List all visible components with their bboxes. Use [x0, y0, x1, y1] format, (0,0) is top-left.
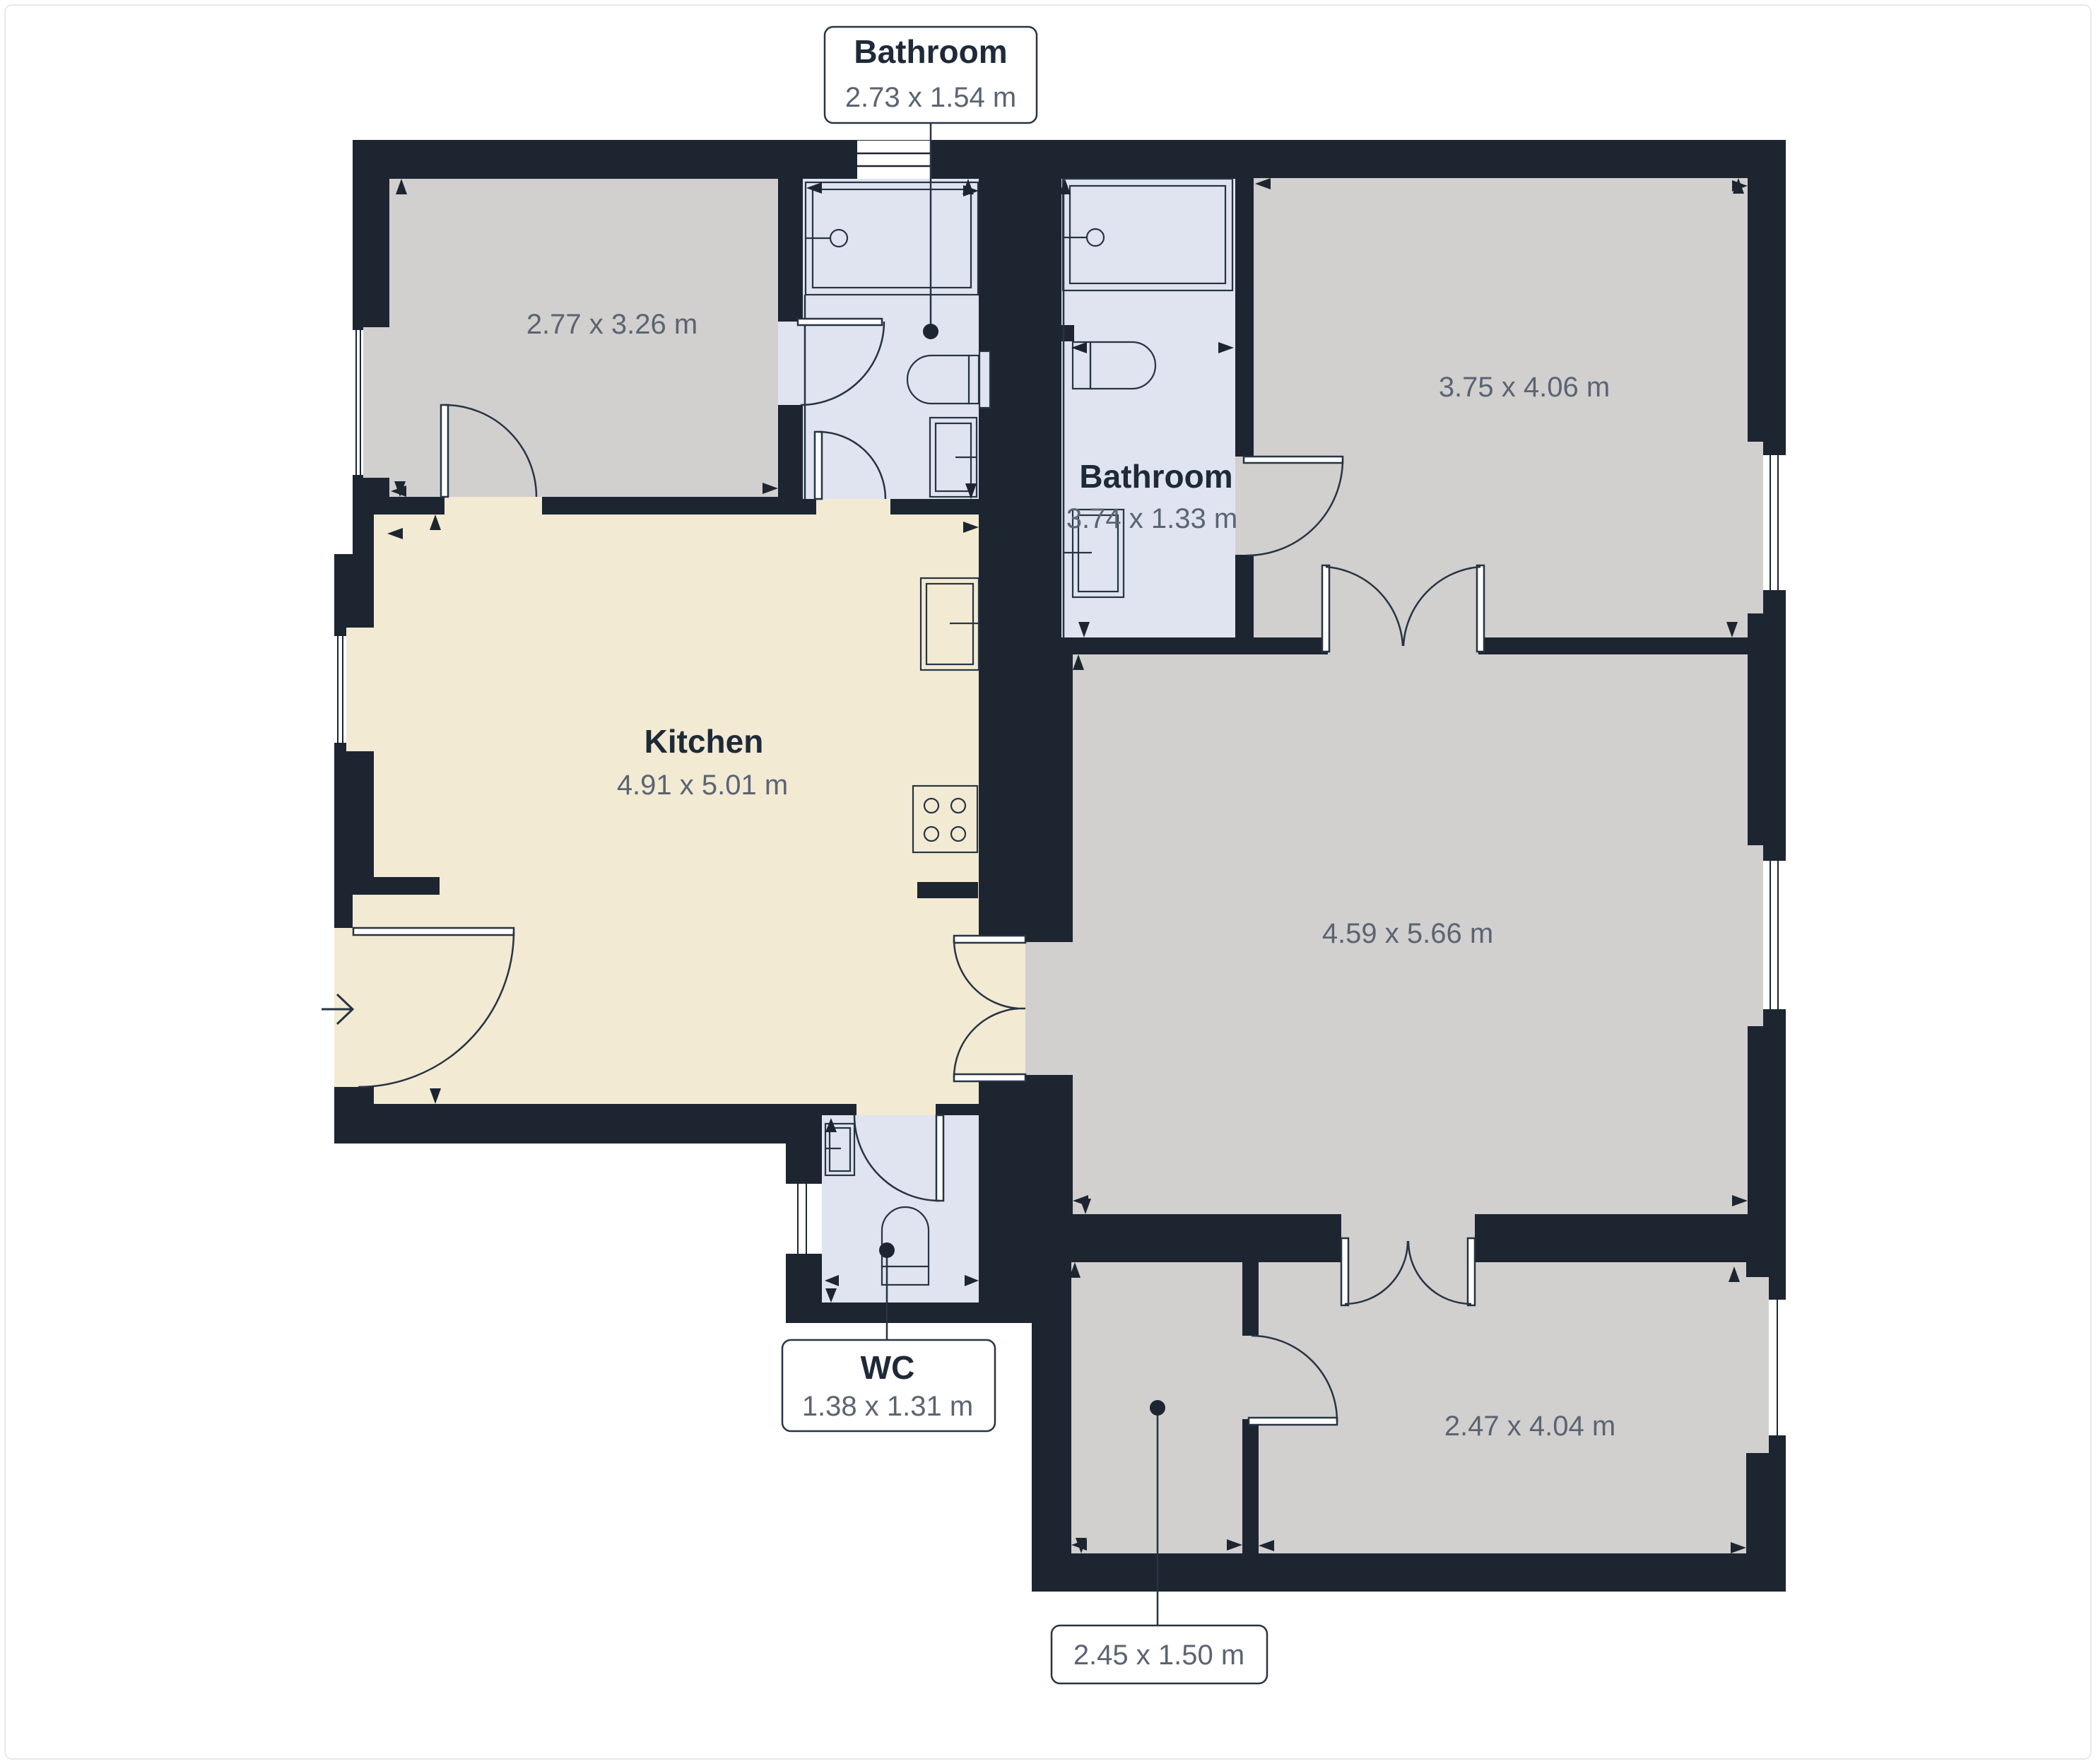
svg-text:Bathroom: Bathroom	[1079, 458, 1232, 495]
svg-text:2.47 x 4.04 m: 2.47 x 4.04 m	[1444, 1411, 1615, 1442]
svg-text:3.74 x 1.33 m: 3.74 x 1.33 m	[1066, 503, 1237, 534]
svg-text:Bathroom: Bathroom	[854, 33, 1007, 70]
svg-text:2.77 x 3.26 m: 2.77 x 3.26 m	[526, 309, 697, 340]
svg-text:2.73 x 1.54 m: 2.73 x 1.54 m	[845, 82, 1016, 113]
svg-text:4.59 x 5.66 m: 4.59 x 5.66 m	[1322, 918, 1493, 949]
svg-text:Kitchen: Kitchen	[644, 723, 764, 760]
svg-text:3.75 x 4.06 m: 3.75 x 4.06 m	[1439, 372, 1610, 403]
svg-text:1.38 x 1.31 m: 1.38 x 1.31 m	[802, 1391, 973, 1422]
svg-text:WC: WC	[861, 1349, 915, 1386]
svg-text:4.91 x 5.01 m: 4.91 x 5.01 m	[617, 770, 788, 801]
svg-text:2.45 x 1.50 m: 2.45 x 1.50 m	[1073, 1640, 1244, 1671]
